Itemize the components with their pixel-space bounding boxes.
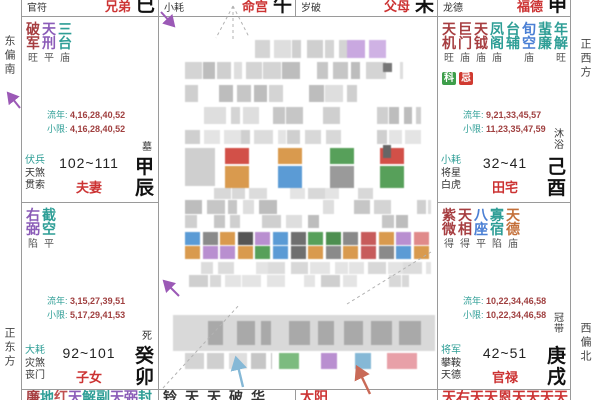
shensha-list: 小耗将星白虎 [441,155,461,193]
mosaic-blur-region [159,17,438,390]
palace-header-wu[interactable]: 小耗 命宫午 [159,0,296,17]
palace-name-fude: 福德 [517,0,543,16]
ganzhi-jiyou: 己酉 [547,157,566,199]
branch-wei: 未 [415,0,434,16]
liunian-line: 流年: 9,21,33,45,57 [463,108,541,121]
star-八座: 八座平 [473,208,489,250]
star-天机: 天机旺 [441,22,457,64]
palace-name-fuqi: 夫妻 [52,177,126,196]
star-巨门: 巨门庙 [457,22,473,64]
branch-wu: 午 [273,0,292,16]
branch-si: 巳 [136,0,155,16]
palace-cell-xu[interactable]: 紫微得天相得八座平寡宿陷天德庙 流年: 10,22,34,46,58 小限: 1… [438,203,571,390]
sihua-badges: 科忌 [442,72,473,85]
shensha-label: 官符 [22,0,47,16]
star-凤阁: 凤阁庙 [489,22,505,64]
shensha-label: 龙德 [438,0,463,16]
star-list: 右弼陷截空平 [25,208,57,250]
star-右弼: 右弼陷 [25,208,41,250]
palace-name-fumu: 父母 [384,0,410,16]
star-年解: 年解旺 [553,22,569,64]
changsheng-state: 沐浴 [554,129,564,151]
badge-忌: 忌 [459,72,473,85]
star-list: 天机旺巨门庙天钺庙凤阁庙台辅旬空庙蜚廉年解旺 [441,22,569,64]
palace-cell-zi-cut[interactable]: 太阳 [296,390,438,400]
liunian-line: 流年: 4,16,28,40,52 [47,108,125,121]
ganzhi-gengxu: 庚戌 [547,346,566,388]
center-info-panel-censored [159,17,438,390]
palace-header-shen[interactable]: 龙德 福德申 [438,0,571,17]
star-天相: 天相得 [457,208,473,250]
age-range: 102~111 [52,155,126,171]
palace-header-wei[interactable]: 岁破 父母未 [296,0,438,17]
star-台辅: 台辅 [505,22,521,64]
star-寡宿: 寡宿陷 [489,208,505,250]
shensha-list: 伏兵天煞贯索 [25,155,45,193]
star-天刑: 天刑平 [41,22,57,64]
branch-shen: 申 [548,0,567,16]
star-天德: 天德庙 [505,208,521,250]
palace-cell-yin-cut[interactable]: 廉地红天解副天弼封 [21,390,159,400]
palace-cell-chen[interactable]: 破军旺天刑平三台庙 流年: 4,16,28,40,52 小限: 4,16,28,… [21,17,159,203]
liunian-line: 流年: 10,22,34,46,58 [463,294,546,307]
xiaoxian-line: 小限: 5,17,29,41,53 [47,308,125,321]
badge-科: 科 [442,72,456,85]
liunian-line: 流年: 3,15,27,39,51 [47,294,125,307]
star-截空: 截空平 [41,208,57,250]
star-三台: 三台庙 [57,22,73,64]
xiaoxian-line: 小限: 11,23,35,47,59 [463,122,546,135]
xiaoxian-line: 小限: 4,16,28,40,52 [47,122,125,135]
star-list: 紫微得天相得八座平寡宿陷天德庙 [441,208,521,250]
age-range: 42~51 [468,345,542,361]
direction-label-east: 正东方 [3,327,15,369]
shensha-list: 将军攀鞍天德 [441,345,461,383]
ganzhi-guimao: 癸卯 [135,346,154,388]
star-破军: 破军旺 [25,22,41,64]
age-range: 32~41 [468,155,542,171]
changsheng-state: 冠带 [554,313,564,335]
palace-cell-mao[interactable]: 右弼陷截空平 流年: 3,15,27,39,51 小限: 5,17,29,41,… [21,203,159,390]
direction-label-west-north: 西偏北 [579,322,591,364]
palace-name-zinv: 子女 [52,367,126,386]
star-天钺: 天钺庙 [473,22,489,64]
shensha-label: 岁破 [296,0,321,16]
palace-name-tianzhai: 田宅 [468,177,542,196]
changsheng-state: 死 [142,331,152,342]
changsheng-state: 墓 [142,142,152,153]
palace-name-xiongdi: 兄弟 [105,0,131,16]
shensha-label: 小耗 [159,0,184,16]
star-旬空: 旬空庙 [521,22,537,64]
star-紫微: 紫微得 [441,208,457,250]
palace-name-guanlu: 官禄 [468,367,542,386]
purple-arrow-left-margin [8,93,20,108]
ziwei-chart: 东偏南 正东方 正西方 西偏北 官符 兄弟巳 小耗 命宫午 岁破 父母未 龙德 … [0,0,600,400]
star-蜚廉: 蜚廉 [537,22,553,64]
ganzhi-jiachen: 甲辰 [135,157,154,199]
star-list: 破军旺天刑平三台庙 [25,22,73,64]
palace-name-minggong: 命宫 [242,0,268,16]
palace-cell-hai-cut[interactable]: 天右天天恩天天天天 [438,390,571,400]
direction-label-east-south: 东偏南 [3,35,15,77]
palace-cell-you[interactable]: 天机旺巨门庙天钺庙凤阁庙台辅旬空庙蜚廉年解旺 科忌 流年: 9,21,33,45… [438,17,571,203]
age-range: 92~101 [52,345,126,361]
palace-header-si[interactable]: 官符 兄弟巳 [21,0,159,17]
shensha-list: 大耗灾煞丧门 [25,345,45,383]
xiaoxian-line: 小限: 10,22,34,46,58 [463,308,546,321]
direction-label-west: 正西方 [579,38,591,80]
palace-cell-chou-cut[interactable]: 铃天天破华 [159,390,296,400]
